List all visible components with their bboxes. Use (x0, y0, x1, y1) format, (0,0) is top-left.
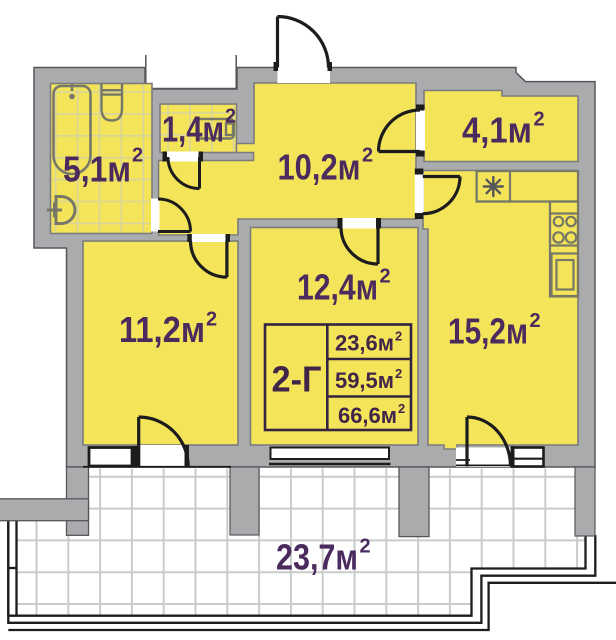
svg-text:2: 2 (206, 309, 217, 331)
svg-text:2: 2 (225, 106, 236, 128)
svg-text:2: 2 (534, 109, 545, 131)
svg-text:23,6м: 23,6м (335, 331, 394, 356)
svg-text:2: 2 (360, 536, 371, 558)
svg-text:2: 2 (530, 310, 541, 332)
svg-text:2: 2 (395, 366, 402, 381)
svg-text:15,2м: 15,2м (448, 311, 528, 352)
svg-text:4,1м: 4,1м (462, 110, 532, 151)
svg-text:66,6м: 66,6м (338, 403, 397, 428)
svg-text:23,7м: 23,7м (276, 537, 358, 578)
svg-text:2: 2 (398, 401, 405, 416)
svg-text:2: 2 (132, 145, 143, 167)
svg-text:2: 2 (362, 145, 373, 167)
svg-text:2-Г: 2-Г (272, 359, 322, 400)
svg-text:10,2м: 10,2м (278, 147, 361, 188)
svg-text:2: 2 (395, 329, 402, 344)
svg-text:11,2м: 11,2м (119, 309, 205, 350)
svg-text:5,1м: 5,1м (63, 149, 131, 190)
svg-text:1,4м: 1,4м (162, 109, 224, 150)
svg-text:59,5м: 59,5м (335, 368, 394, 393)
svg-text:2: 2 (380, 266, 391, 288)
svg-text:12,4м: 12,4м (297, 267, 378, 308)
